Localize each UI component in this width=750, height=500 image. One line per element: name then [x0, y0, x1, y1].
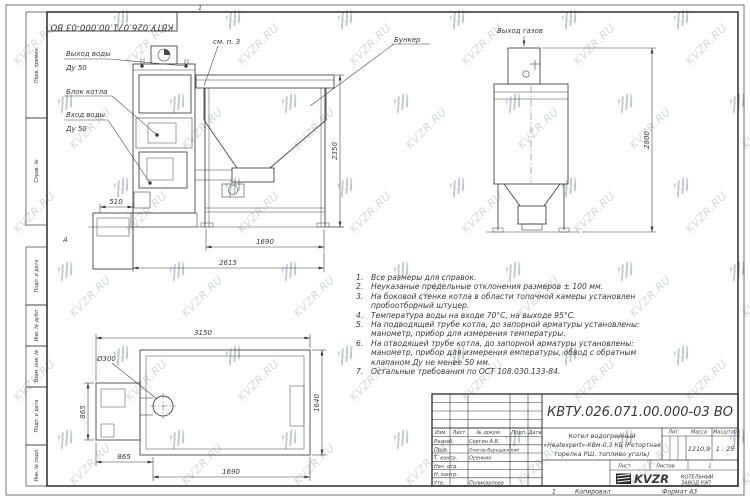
- hdr-masshtab: Масштаб: [713, 430, 737, 436]
- front-view-leaders: [64, 44, 430, 185]
- label-water-out: Выход воды: [66, 50, 111, 58]
- furnace-door: [139, 152, 187, 188]
- note-text: На подводящей трубе котла, до запорной а…: [371, 320, 644, 339]
- ash-hatch: [134, 192, 150, 208]
- dim-2350: 2350: [331, 142, 339, 160]
- note-text: Неуказаные предельные отклонения размеро…: [371, 282, 644, 291]
- hdr-izm: Изм.: [435, 430, 447, 436]
- hdr-data: Дата: [528, 430, 542, 436]
- hdr-podp: Подп.: [511, 430, 526, 436]
- note-text: На отводящей трубе котла, до запорной ар…: [371, 339, 644, 367]
- stamp-listov-value: 1: [708, 464, 711, 470]
- brand-text: KVZR: [634, 472, 669, 486]
- front-view-labels: Выход воды Ду 50 Блок котла Вход воды Ду…: [65, 36, 421, 133]
- margin-label: Взам. инв. №: [34, 350, 40, 383]
- margin-label: Подп. и дата: [34, 400, 40, 433]
- copy-number: 1: [552, 489, 556, 496]
- note-item: 3. На боковой стенке котла в области топ…: [356, 292, 644, 311]
- label-see-note: см. п. 3: [213, 38, 240, 46]
- row-name: Осенкин: [469, 456, 492, 462]
- note-text: Остальные требования по ОСТ 108.030.133-…: [371, 367, 644, 376]
- note-number: 5.: [356, 320, 371, 339]
- hdr-listov: Листов: [655, 464, 675, 470]
- label-gas-out: Выход газов: [497, 27, 543, 35]
- label-water-in-dn: Ду 50: [65, 125, 87, 133]
- dim-510: 510: [109, 198, 123, 206]
- row-role: Н. контр.: [434, 472, 458, 478]
- label-bunker: Бункер: [394, 36, 421, 44]
- front-view: [88, 46, 343, 269]
- fold-mark: 1: [198, 5, 202, 12]
- company-line2: ЗАВОД РЭП: [681, 481, 711, 487]
- row-role: Разраб.: [434, 439, 454, 445]
- note-number: 4.: [356, 311, 371, 320]
- hdr-lit: Лит.: [667, 430, 680, 436]
- notes-list: 1. Все размеры для справок. 2. Неуказаны…: [356, 273, 644, 376]
- dim-2615: 2615: [219, 259, 237, 267]
- stamp-doc-number: КВТУ.026.071.00.000-03 ВО: [547, 405, 733, 420]
- company-logo: KVZR КОТЕЛЬНЫЙ ЗАВОД РЭП: [616, 472, 714, 487]
- dim-3150: 3150: [194, 329, 212, 337]
- frame: [6, 5, 744, 495]
- stamp-title-3: горелка РШ, топливо уголь): [554, 450, 649, 458]
- side-view: [486, 48, 580, 232]
- stamp-title-1: Котел водогрейный: [568, 432, 635, 440]
- row-name: Онегов-Верещинский: [469, 447, 519, 453]
- front-view-dimensions: [100, 75, 344, 272]
- feeder-motor: [222, 184, 244, 197]
- dim-865-left: 865: [79, 405, 87, 419]
- note-number: 1.: [356, 273, 371, 282]
- zone-letter: А: [62, 236, 68, 244]
- row-name: Поликарпова: [469, 480, 504, 486]
- dim-dia300: Ø300: [96, 355, 116, 363]
- note-number: 7.: [356, 367, 371, 376]
- dim-1690: 1690: [256, 238, 274, 246]
- stamp-title-2: «Heatexpert»-КВм-0,3 КБ (Ретортная: [543, 441, 661, 449]
- feeder-housing: [232, 168, 274, 182]
- note-item: 4. Температура воды на входе 70°С, на вы…: [356, 311, 644, 320]
- copied-label: Копировал: [575, 489, 610, 496]
- hdr-list2: Лист: [617, 464, 632, 470]
- note-item: 6. На отводящей трубе котла, до запорной…: [356, 339, 644, 367]
- note-text: Все размеры для справок.: [371, 273, 644, 282]
- margin-label: Перв. примен.: [34, 47, 40, 83]
- label-water-out-dn: Ду 50: [65, 64, 87, 72]
- note-number: 6.: [356, 339, 371, 367]
- bunker-top: [196, 75, 334, 88]
- note-item: 2. Неуказаные предельные отклонения разм…: [356, 282, 644, 291]
- plan-bunker-footprint: [140, 350, 310, 455]
- top-doc-number: КВТУ.026.071.00.000-03 ВО: [50, 22, 173, 32]
- hdr-list: Лист: [452, 430, 467, 436]
- footer-labels: 1 Копировал Формат А3: [552, 489, 697, 496]
- row-role: Т. контр.: [434, 456, 457, 462]
- row-name: Сергин А.В.: [469, 439, 500, 445]
- plan-boiler-footprint: [96, 383, 140, 440]
- margin-labels: Перв. примен. Справ. № Подп. и дата Инв.…: [34, 47, 40, 482]
- note-text: Температура воды на входе 70°С, на выход…: [371, 311, 644, 320]
- margin-label: Инв. № дубл.: [34, 309, 40, 342]
- note-text: На боковой стенке котла в области топочн…: [371, 292, 644, 311]
- note-number: 3.: [356, 292, 371, 311]
- note-item: 5. На подводящей трубе котла, до запорно…: [356, 320, 644, 339]
- drawing-sheet: KVZR.RUKVZR.RUKVZR.RUKVZR.RUKVZR.RUKVZR.…: [0, 0, 750, 500]
- dim-2800: 2800: [643, 131, 651, 149]
- stamp-scale: 1 : 25: [716, 445, 734, 453]
- label-boiler-block: Блок котла: [66, 88, 107, 96]
- side-hopper-bottom: [518, 206, 546, 224]
- row-role: Пров.: [434, 447, 449, 453]
- hdr-doc: № докум.: [476, 430, 502, 436]
- boiler-top-door: [139, 75, 191, 113]
- note-number: 2.: [356, 282, 371, 291]
- row-role: Нач. отд.: [434, 464, 458, 470]
- row-role: Утв.: [434, 480, 445, 486]
- front-view-dim-texts: 510 1690 2615 2350: [109, 142, 339, 267]
- dim-865-bottom: 865: [117, 453, 131, 461]
- format-label: Формат А3: [662, 489, 697, 496]
- note-item: 1. Все размеры для справок.: [356, 273, 644, 282]
- label-water-in: Вход воды: [66, 111, 106, 119]
- side-view-annotations: Выход газов 2800: [497, 27, 656, 232]
- dim-1690-bottom: 1690: [222, 468, 240, 476]
- dim-1640: 1640: [313, 394, 321, 412]
- stamp-mass: 1210,9: [688, 445, 710, 453]
- ash-pit: [93, 213, 133, 269]
- plan-view-dim-texts: 3150 1640 865 865 1690 Ø300: [79, 329, 321, 476]
- boiler-body: [133, 64, 195, 213]
- margin-label: Подп. и дата: [34, 260, 40, 293]
- drawing-svg: Перв. примен. Справ. № Подп. и дата Инв.…: [0, 0, 750, 500]
- margin-label: Инв. № подл.: [34, 448, 40, 481]
- margin-label: Справ. №: [34, 159, 40, 182]
- hdr-massa: Масса: [691, 430, 707, 436]
- company-line1: КОТЕЛЬНЫЙ: [681, 474, 714, 481]
- note-item: 7. Остальные требования по ОСТ 108.030.1…: [356, 367, 644, 376]
- plan-view: [96, 350, 310, 455]
